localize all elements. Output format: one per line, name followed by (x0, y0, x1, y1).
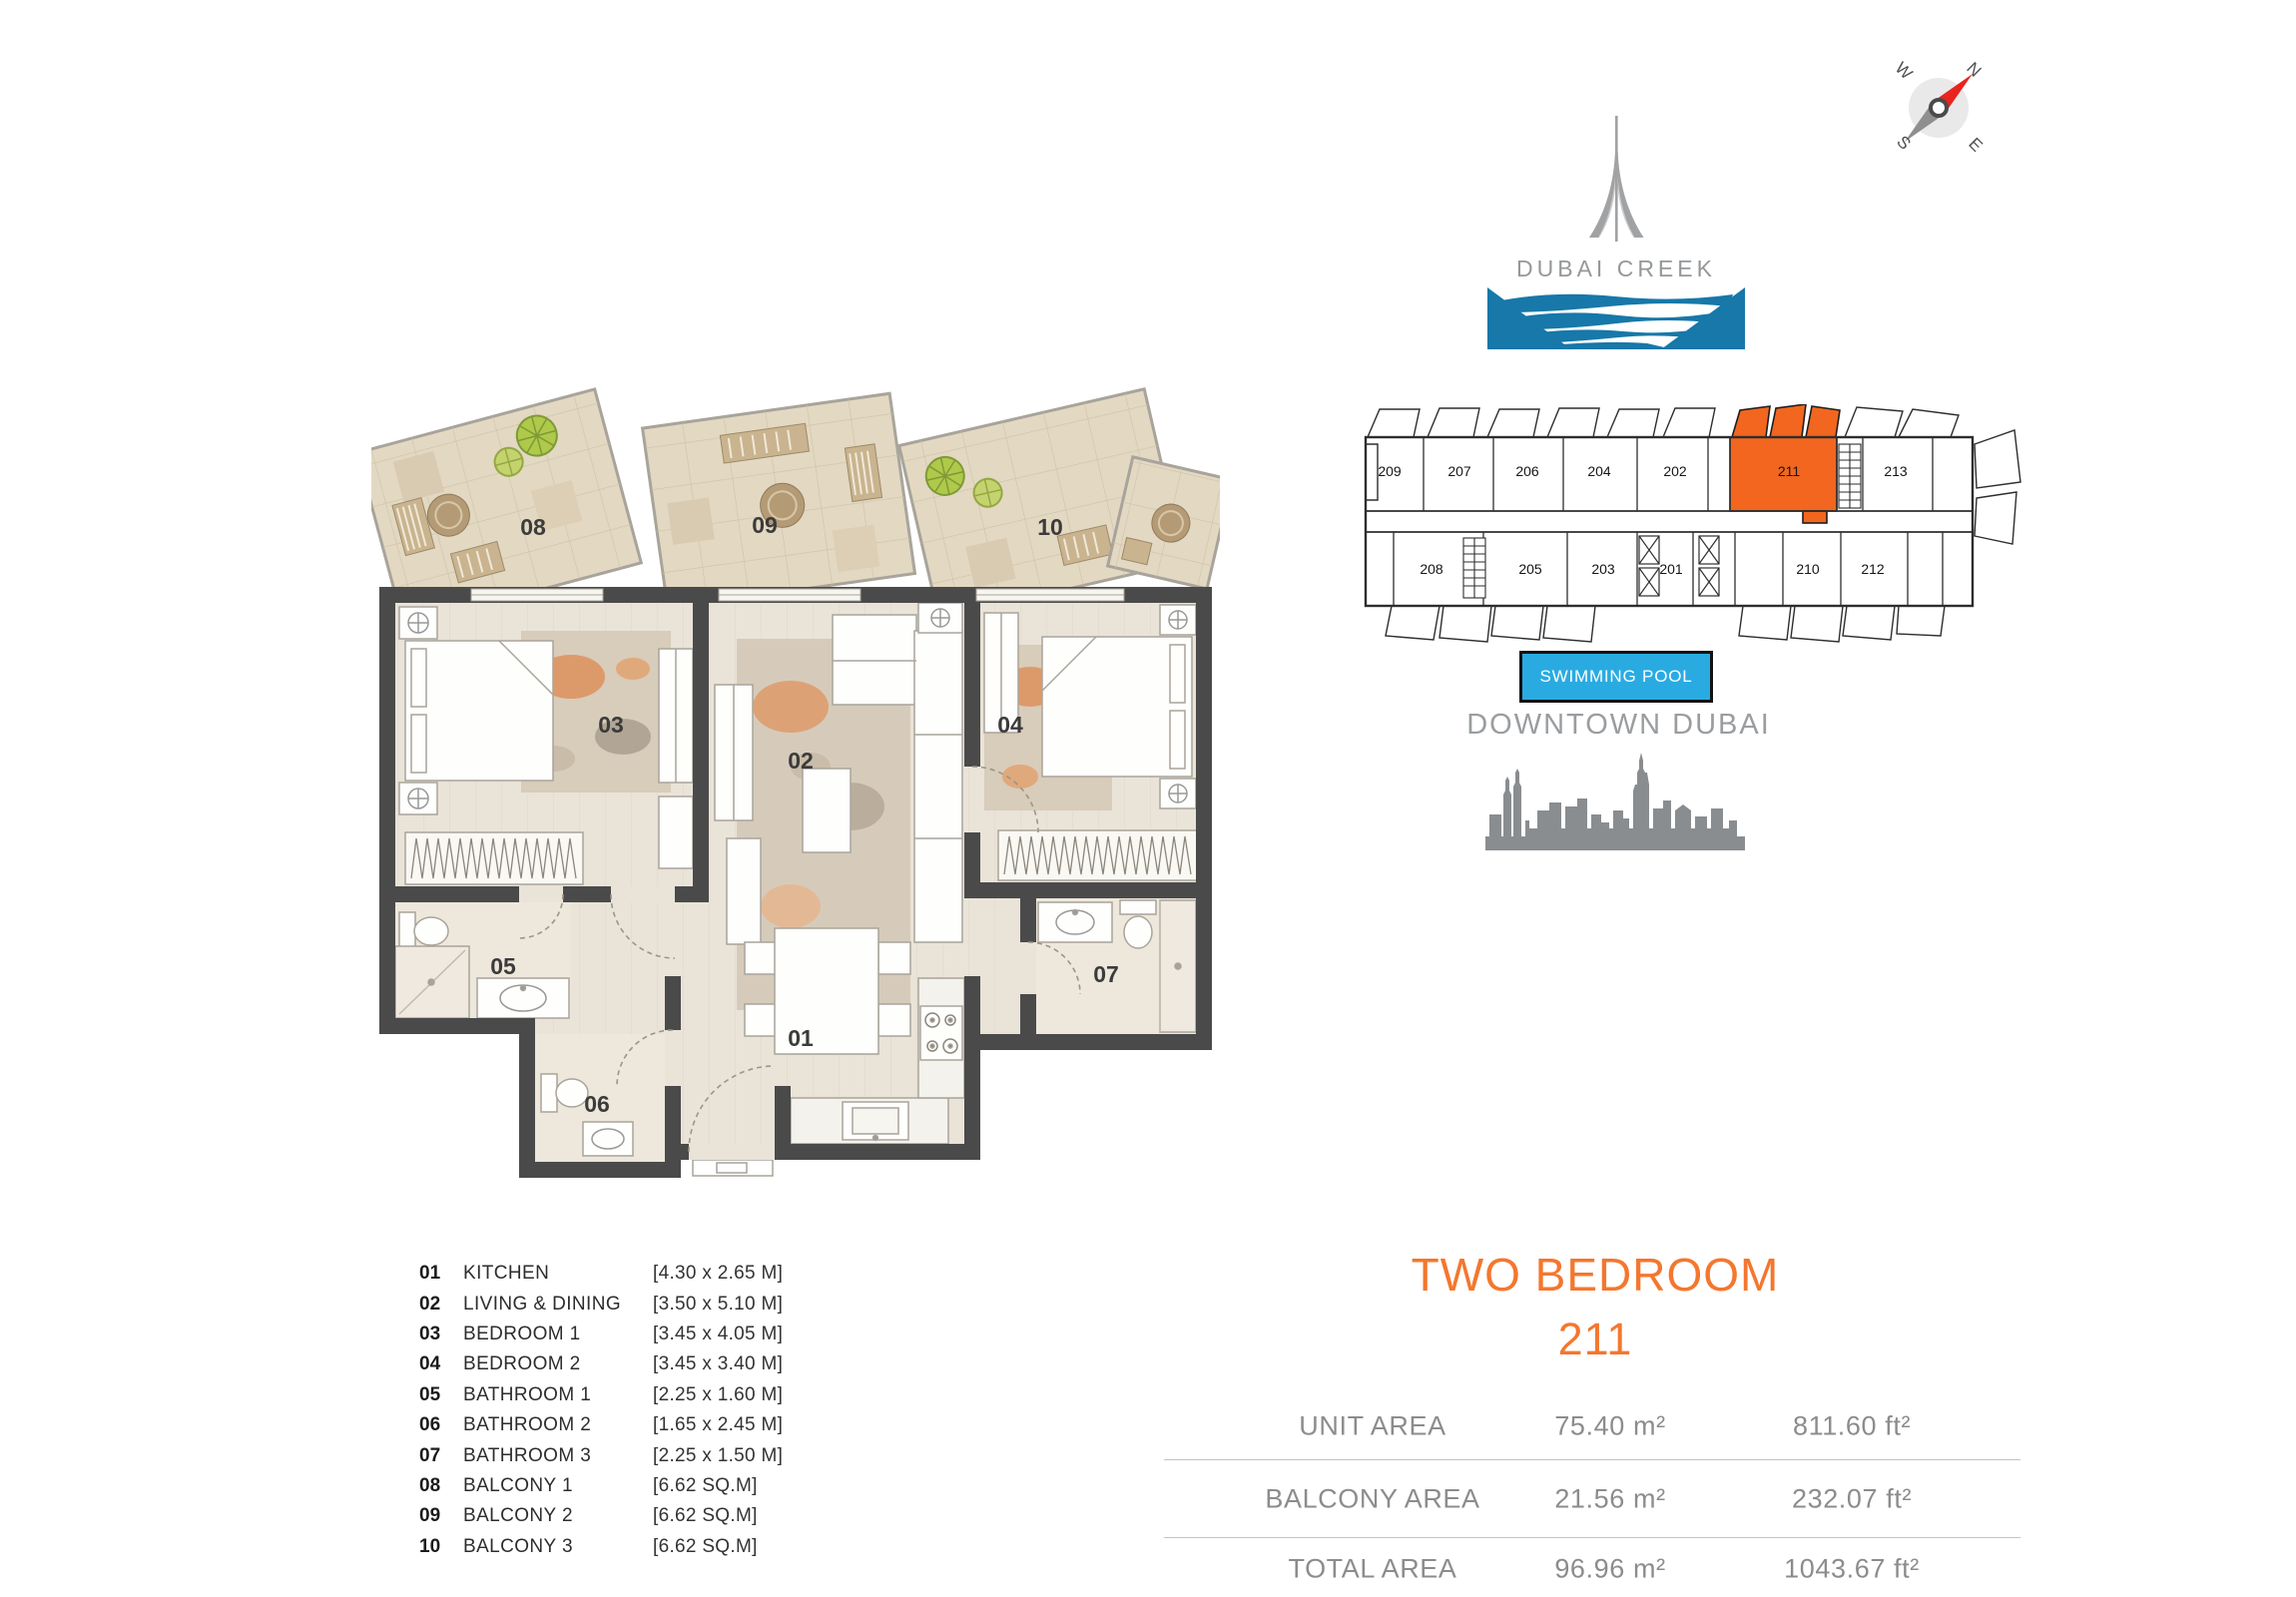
balcony-2-area (643, 393, 915, 608)
unit-number-209: 209 (1378, 463, 1402, 479)
legend-name: BEDROOM 2 (463, 1353, 653, 1375)
legend-name: BATHROOM 1 (463, 1384, 653, 1406)
compass-n: N (1963, 59, 1985, 81)
area-summary-table: UNIT AREA 75.40 m² 811.60 ft² BALCONY AR… (1164, 1392, 2020, 1597)
entry-niche (693, 1160, 773, 1176)
legend-row: 08BALCONY 1[6.62 SQ.M] (419, 1471, 811, 1501)
compass-icon: W N S E (1881, 50, 1997, 166)
legend-num: 08 (419, 1475, 463, 1497)
room-label-balcony1: 08 (520, 514, 546, 540)
legend-name: BEDROOM 1 (463, 1324, 653, 1345)
legend-dim: [2.25 x 1.60 M] (653, 1384, 811, 1406)
bedroom2-wardrobe (998, 830, 1198, 880)
compass-e: E (1965, 134, 1986, 155)
row-label: UNIT AREA (1299, 1410, 1445, 1441)
room-label-balcony2: 09 (752, 512, 778, 538)
row-imperial: 232.07 ft² (1792, 1483, 1912, 1514)
legend-dim: [4.30 x 2.65 M] (653, 1263, 811, 1285)
swimming-pool-label: SWIMMING POOL (1519, 651, 1713, 703)
unit-number-204: 204 (1587, 463, 1611, 479)
floorplan-brochure-page: 01 02 03 04 05 06 07 08 09 10 01KITCHEN[… (0, 0, 2296, 1597)
legend-num: 05 (419, 1384, 463, 1406)
legend-name: LIVING & DINING (463, 1294, 653, 1316)
table-row-unit-area: UNIT AREA 75.40 m² 811.60 ft² (1164, 1392, 2020, 1460)
room-legend: 01KITCHEN[4.30 x 2.65 M] 02LIVING & DINI… (419, 1259, 811, 1562)
row-imperial: 1043.67 ft² (1784, 1554, 1920, 1585)
dubai-skyline-icon (1485, 751, 1745, 850)
legend-row: 09BALCONY 2[6.62 SQ.M] (419, 1501, 811, 1531)
unit-number-201: 201 (1659, 561, 1683, 577)
unit-number-212: 212 (1861, 561, 1885, 577)
legend-row: 02LIVING & DINING[3.50 x 5.10 M] (419, 1289, 811, 1319)
legend-dim: [3.45 x 4.05 M] (653, 1324, 811, 1345)
room-label-bedroom1: 03 (598, 712, 624, 738)
bathroom3-shower (1160, 900, 1196, 1032)
stove-icon (920, 1006, 962, 1060)
downtown-dubai-label: DOWNTOWN DUBAI (1446, 709, 1791, 742)
room-label-bath1: 05 (490, 953, 516, 979)
building-key-plan: 209 207 206 204 202 211 213 208 205 203 … (1364, 404, 2022, 654)
legend-dim: [3.50 x 5.10 M] (653, 1294, 811, 1316)
unit-number-211: 211 (1778, 463, 1801, 479)
unit-number-203: 203 (1591, 561, 1615, 577)
legend-name: BALCONY 2 (463, 1505, 653, 1527)
legend-num: 03 (419, 1324, 463, 1345)
logo-title: DUBAI CREEK (1446, 256, 1786, 282)
room-label-bedroom2: 04 (997, 712, 1023, 738)
legend-dim: [6.62 SQ.M] (653, 1475, 811, 1497)
legend-dim: [6.62 SQ.M] (653, 1505, 811, 1527)
unit-number-208: 208 (1420, 561, 1443, 577)
legend-num: 09 (419, 1505, 463, 1527)
legend-name: BATHROOM 3 (463, 1445, 653, 1467)
legend-name: BALCONY 3 (463, 1536, 653, 1558)
legend-num: 10 (419, 1536, 463, 1558)
legend-row: 01KITCHEN[4.30 x 2.65 M] (419, 1259, 811, 1289)
row-metric: 21.56 m² (1554, 1483, 1665, 1514)
legend-dim: [3.45 x 3.40 M] (653, 1353, 811, 1375)
row-metric: 96.96 m² (1554, 1554, 1665, 1585)
floor-plan: 01 02 03 04 05 06 07 08 09 10 (371, 387, 1220, 1191)
room-label-kitchen: 01 (788, 1025, 814, 1051)
unit-number-210: 210 (1796, 561, 1820, 577)
legend-row: 05BATHROOM 1[2.25 x 1.60 M] (419, 1380, 811, 1410)
creek-water-icon (1487, 287, 1745, 349)
legend-name: BATHROOM 2 (463, 1414, 653, 1436)
unit-number-213: 213 (1884, 463, 1908, 479)
row-label: TOTAL AREA (1288, 1554, 1456, 1585)
legend-name: KITCHEN (463, 1263, 653, 1285)
unit-number-205: 205 (1518, 561, 1542, 577)
creek-tower-icon (1585, 114, 1647, 244)
legend-num: 01 (419, 1263, 463, 1285)
bathroom3-vanity (1038, 902, 1112, 942)
bedroom1-wardrobe (405, 832, 583, 884)
table-row-balcony-area: BALCONY AREA 21.56 m² 232.07 ft² (1164, 1460, 2020, 1538)
bathroom1-vanity (477, 978, 569, 1018)
bedroom1-dresser (659, 649, 693, 868)
unit-number-202: 202 (1663, 463, 1687, 479)
legend-num: 04 (419, 1353, 463, 1375)
row-imperial: 811.60 ft² (1793, 1410, 1911, 1441)
swimming-pool-text: SWIMMING POOL (1539, 667, 1692, 687)
unit-type-title: TWO BEDROOM (1396, 1248, 1795, 1302)
legend-num: 02 (419, 1294, 463, 1316)
legend-name: BALCONY 1 (463, 1475, 653, 1497)
row-metric: 75.40 m² (1554, 1410, 1665, 1441)
legend-row: 07BATHROOM 3[2.25 x 1.50 M] (419, 1440, 811, 1470)
legend-num: 07 (419, 1445, 463, 1467)
legend-row: 06BATHROOM 2[1.65 x 2.45 M] (419, 1410, 811, 1440)
table-row-total-area: TOTAL AREA 96.96 m² 1043.67 ft² (1164, 1538, 2020, 1597)
legend-dim: [1.65 x 2.45 M] (653, 1414, 811, 1436)
room-label-living: 02 (788, 748, 814, 774)
legend-dim: [6.62 SQ.M] (653, 1536, 811, 1558)
legend-num: 06 (419, 1414, 463, 1436)
legend-row: 04BEDROOM 2[3.45 x 3.40 M] (419, 1349, 811, 1379)
living-coffee-table (803, 769, 851, 852)
legend-row: 03BEDROOM 1[3.45 x 4.05 M] (419, 1320, 811, 1349)
bathroom1-shower (395, 946, 469, 1018)
room-label-bath3: 07 (1093, 961, 1119, 987)
row-label: BALCONY AREA (1265, 1483, 1479, 1514)
unit-number-206: 206 (1515, 463, 1539, 479)
legend-dim: [2.25 x 1.50 M] (653, 1445, 811, 1467)
unit-number-207: 207 (1447, 463, 1471, 479)
compass-w: W (1892, 59, 1917, 84)
legend-row: 10BALCONY 3[6.62 SQ.M] (419, 1532, 811, 1562)
unit-number-heading: 211 (1396, 1314, 1795, 1365)
room-label-bath2: 06 (584, 1091, 610, 1117)
balcony-windows (471, 589, 1124, 601)
bathroom2-sink (583, 1122, 633, 1156)
room-label-balcony3: 10 (1037, 514, 1063, 540)
